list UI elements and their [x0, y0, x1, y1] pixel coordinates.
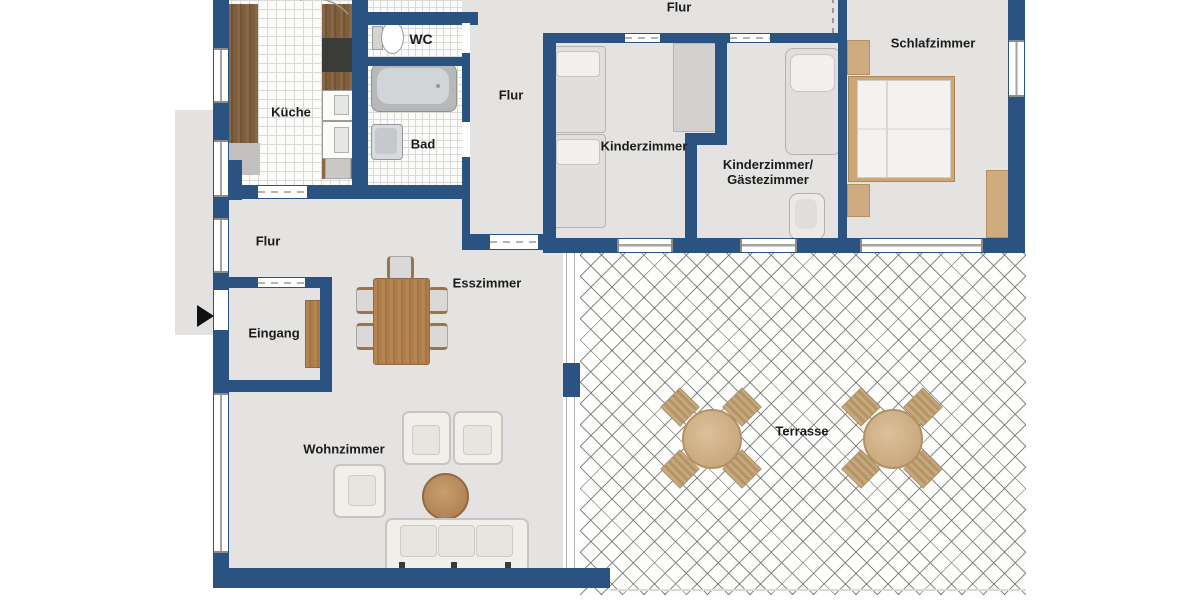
- terrace-table: [682, 409, 742, 469]
- door-entrance-room-sliding: [258, 278, 305, 287]
- floorplan-canvas: Küche WC Bad Flur Flur Flur Kinderzimmer…: [0, 0, 1200, 600]
- wall-kids-left: [543, 33, 556, 253]
- wall-kids-guest-jog: [685, 133, 727, 145]
- window-livingroom: [214, 393, 228, 553]
- room-label-schlafzimmer: Schlafzimmer: [891, 36, 976, 51]
- bedroom-wardrobe: [986, 170, 1010, 238]
- sofa-cushion-2: [438, 525, 475, 557]
- dining-table: [373, 278, 430, 365]
- room-label-kinderzimmer: Kinderzimmer: [601, 139, 688, 154]
- double-bed-mattress: [857, 80, 951, 178]
- dishwasher-basin: [334, 127, 349, 153]
- armchair-1: [402, 411, 451, 465]
- wall-kids-guest-lower: [685, 145, 697, 253]
- sofa-cushion-1: [400, 525, 437, 557]
- door-bedroom-swing-line: [831, 0, 834, 33]
- room-label-gaestezimmer: Kinderzimmer/ Gästezimmer: [723, 157, 813, 187]
- room-label-esszimmer: Esszimmer: [453, 276, 522, 291]
- kids-bed-1-pillow: [556, 51, 600, 77]
- dining-chair-right-1: [428, 287, 448, 314]
- window-hall: [214, 218, 228, 273]
- armchair-2-seat: [463, 425, 492, 455]
- entrance-arrow-icon: [197, 305, 214, 327]
- door-kids: [625, 34, 660, 42]
- kitchen-sink-basin: [334, 95, 349, 115]
- room-label-eingang: Eingang: [248, 326, 299, 341]
- wall-kitchen-bath: [352, 0, 368, 185]
- sofa: [385, 518, 529, 574]
- room-label-wc: WC: [409, 31, 432, 47]
- window-bedroom-right: [1009, 40, 1024, 97]
- window-kids-terrace: [617, 239, 673, 252]
- wall-kitchen-bottom: [213, 185, 470, 199]
- bathroom-sink-basin: [375, 128, 397, 154]
- window-guest-terrace: [740, 239, 797, 252]
- wall-wc-bad-divider: [368, 57, 462, 66]
- terrace-sliding-door: [563, 250, 580, 572]
- door-wc: [462, 23, 470, 53]
- wall-wc-top: [352, 12, 478, 25]
- door-hall-sliding: [490, 235, 538, 249]
- door-bad: [462, 122, 470, 157]
- terrace-set-1: [655, 382, 765, 492]
- terrace-set-2: [836, 382, 946, 492]
- wall-guest-bedroom: [838, 0, 847, 253]
- wall-entrance-right: [320, 277, 332, 392]
- guest-room-seat-pad: [795, 199, 817, 229]
- door-guest: [730, 34, 770, 42]
- room-label-flur-lower: Flur: [256, 234, 281, 249]
- wall-entrance-bottom: [213, 380, 332, 392]
- wall-exterior-bottom: [213, 568, 610, 588]
- room-label-flur-top: Flur: [667, 0, 692, 15]
- room-label-terrasse: Terrasse: [775, 424, 828, 439]
- kids-wardrobe: [673, 43, 717, 132]
- wall-exterior-right: [1008, 0, 1025, 253]
- window-bedroom-terrace: [860, 239, 983, 252]
- window-kitchen-1: [214, 48, 228, 103]
- window-kitchen-2: [214, 140, 228, 197]
- stove: [322, 38, 352, 72]
- door-swing-arc: [288, 0, 358, 16]
- guest-bed-pillow: [790, 54, 835, 92]
- terrace-edge-line: [610, 589, 1026, 591]
- room-label-wohnzimmer: Wohnzimmer: [303, 442, 384, 457]
- room-label-gaestezimmer-line1: Kinderzimmer/: [723, 157, 813, 172]
- kitchen-counter-left: [228, 4, 258, 143]
- wall-terrace-post: [563, 363, 580, 397]
- armchair-2: [453, 411, 503, 465]
- bathtub-drain: [436, 84, 440, 88]
- room-label-flur-mid: Flur: [499, 88, 524, 103]
- porch-area: [175, 110, 213, 335]
- nightstand-bottom: [847, 184, 870, 217]
- dining-chair-top: [387, 256, 414, 280]
- toilet-bowl: [381, 21, 404, 54]
- wall-kids-guest-upper: [715, 43, 727, 139]
- room-label-bad: Bad: [411, 137, 436, 152]
- dining-chair-right-2: [428, 323, 448, 350]
- nightstand-top: [847, 40, 870, 75]
- coffee-table: [422, 473, 469, 520]
- armchair-1-seat: [412, 425, 440, 455]
- armchair-3-seat: [348, 475, 376, 506]
- kitchen-stool: [325, 158, 351, 179]
- door-entrance: [214, 290, 228, 330]
- sofa-cushion-3: [476, 525, 513, 557]
- terrace-table: [863, 409, 923, 469]
- room-label-gaestezimmer-line2: Gästezimmer: [723, 172, 813, 187]
- wall-corridor-bottom: [543, 33, 847, 43]
- door-kitchen-sliding: [258, 186, 307, 198]
- kids-bed-2-pillow: [556, 139, 600, 165]
- room-label-kueche: Küche: [271, 105, 311, 120]
- armchair-3: [333, 464, 386, 518]
